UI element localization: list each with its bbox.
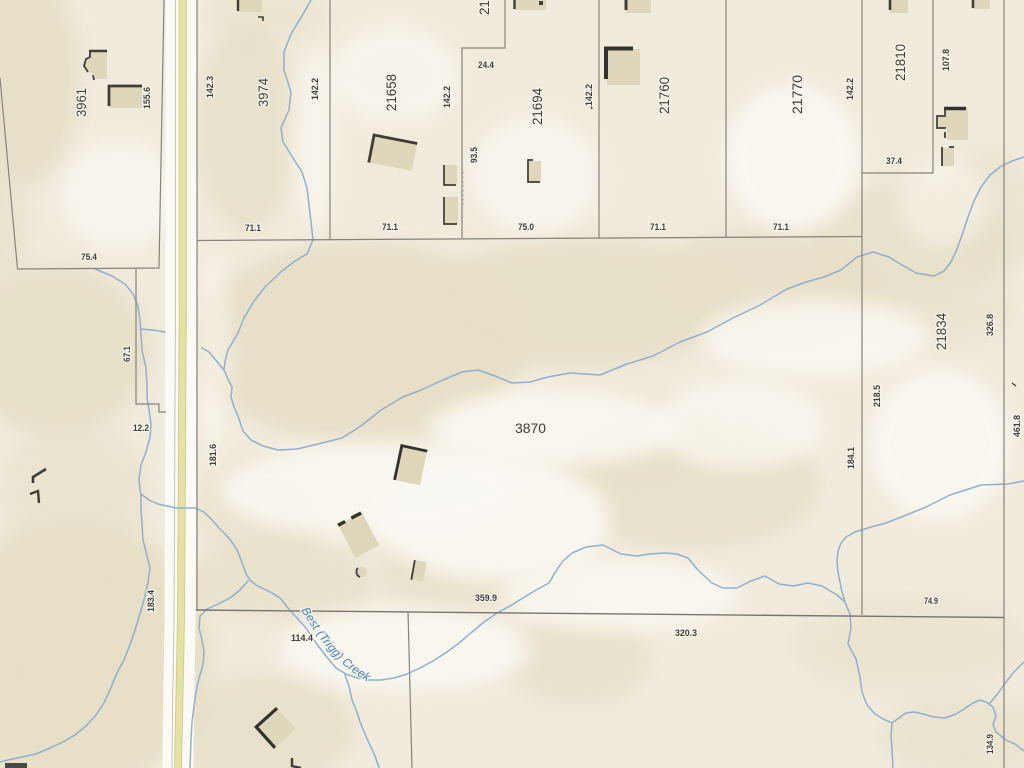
svg-text:71.1: 71.1 [773,222,789,232]
svg-text:184.1: 184.1 [846,447,856,469]
svg-text:37.4: 37.4 [886,156,903,166]
svg-text:21694: 21694 [529,88,545,125]
svg-text:21664: 21664 [476,0,492,15]
svg-text:142.2: 142.2 [310,78,320,100]
svg-text:71.1: 71.1 [245,223,261,233]
svg-text:134.9: 134.9 [985,734,995,754]
svg-text:24.4: 24.4 [478,60,495,70]
svg-text:320.3: 320.3 [675,628,697,638]
svg-text:21658: 21658 [383,74,399,111]
svg-text:21834: 21834 [933,313,949,350]
svg-text:142.2: 142.2 [845,78,855,100]
svg-text:142.2: 142.2 [442,86,452,108]
svg-text:75.4: 75.4 [81,252,98,262]
svg-text:71.1: 71.1 [382,222,398,232]
svg-text:67.1: 67.1 [122,346,132,362]
svg-text:3961: 3961 [73,88,89,117]
svg-text:93.5: 93.5 [469,147,479,163]
svg-text:218.5: 218.5 [872,385,882,407]
svg-text:107.8: 107.8 [941,49,951,71]
svg-text:181.6: 181.6 [208,444,218,466]
svg-text:3870: 3870 [515,420,546,436]
svg-text:359.9: 359.9 [475,593,497,603]
svg-text:142.2: 142.2 [584,84,594,106]
svg-text:326.8: 326.8 [985,314,995,336]
svg-text:Best (Trigg) Creek: Best (Trigg) Creek [299,604,374,684]
svg-text:71.1: 71.1 [650,222,666,232]
svg-text:12.2: 12.2 [133,423,149,433]
svg-text:142.3: 142.3 [205,76,215,98]
svg-text:114.4: 114.4 [291,633,314,643]
svg-text:75.0: 75.0 [518,222,534,232]
svg-text:21770: 21770 [789,75,805,114]
svg-text:3974: 3974 [255,78,271,107]
svg-text:21760: 21760 [656,77,672,114]
svg-text:74.9: 74.9 [924,596,938,606]
svg-text:21810: 21810 [892,44,908,81]
svg-text:155.6: 155.6 [142,87,152,109]
svg-text:183.4: 183.4 [146,589,156,612]
svg-text:461.8: 461.8 [1012,415,1022,437]
